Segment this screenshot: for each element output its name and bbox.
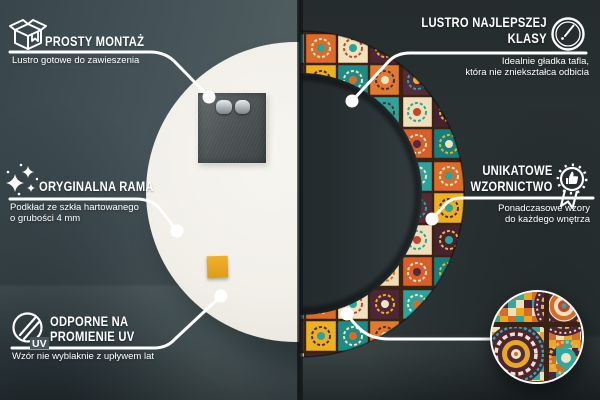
adhesive-pad — [207, 256, 229, 279]
split-divider — [297, 0, 303, 400]
callout-subtitle-simple-mount: Lustro gotowe do zawieszenia — [12, 56, 139, 67]
callout-subtitle-original-frame: Podkład ze szkła hartowanego o grubości … — [10, 203, 139, 224]
package-icon — [8, 14, 48, 52]
callout-title-top-class: LUSTRO NAJLEPSZEJ KLASY — [422, 14, 547, 46]
callout-subtitle-unique-design: Ponadczasowe wzory do każdego wnętrza — [498, 204, 590, 225]
mounting-plate — [198, 93, 266, 163]
svg-text:UV: UV — [32, 338, 47, 350]
tile-grout-vertical — [544, 292, 549, 381]
callout-subtitle-uv: Wzór nie wyblaknie z upływem lat — [12, 352, 154, 363]
callout-title-original-frame: ORYGINALNA RAMA — [39, 179, 154, 194]
tile-grout-horizontal — [492, 322, 581, 327]
hanger-bracket — [216, 100, 250, 114]
mirror-back-panel — [146, 42, 300, 342]
uv-shield-icon: UV — [10, 310, 50, 350]
callout-title-unique-design: UNIKATOWE WZORNICTWO — [471, 162, 553, 194]
callout-title-simple-mount: PROSTY MONTAŻ — [45, 34, 144, 49]
callout-title-uv: ODPORNE NA PROMIENIE UV — [50, 314, 134, 344]
patchwork-mirror — [300, 24, 471, 364]
callout-subtitle-top-class: Idealnie gładka tafla, która nie znieksz… — [465, 57, 589, 78]
sparkles-icon — [4, 162, 38, 196]
mirror-shine-icon — [549, 15, 587, 53]
product-infographic: PROSTY MONTAŻ Lustro gotowe do zawieszen… — [0, 0, 600, 400]
thumbs-up-glyph — [566, 172, 578, 184]
pattern-detail-zoom — [490, 290, 584, 384]
